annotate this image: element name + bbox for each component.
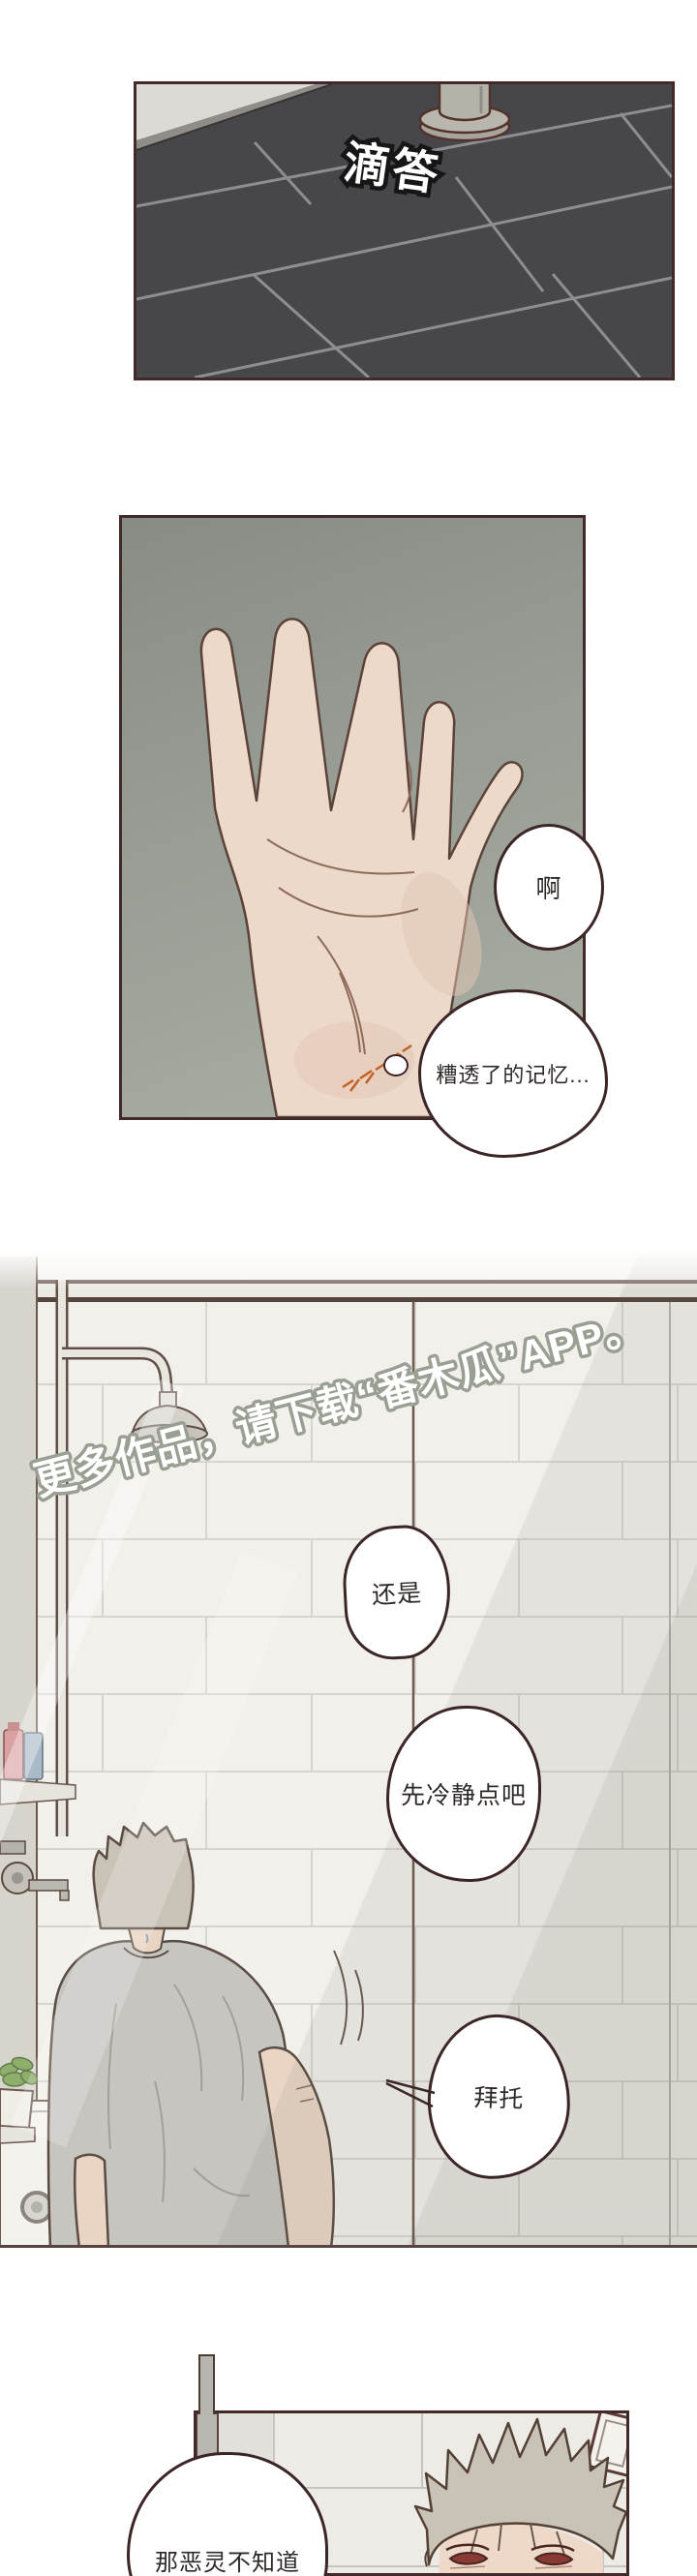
figure-left-forearm — [75, 2155, 108, 2248]
panel-floor-scene — [134, 81, 675, 380]
pink-bottle-cap — [8, 1722, 19, 1731]
floor-illustration — [136, 84, 672, 378]
blue-bottle — [24, 1733, 43, 1779]
shower-fixture — [62, 1280, 207, 1836]
speech-bubble-memory: 糟透了的记忆... — [418, 989, 608, 1158]
panel-bottom-line — [0, 2245, 697, 2248]
shower-room-illustration — [0, 1249, 697, 2248]
bubble-ah-text: 啊 — [535, 869, 561, 905]
pink-bottle — [4, 1730, 23, 1779]
plant-pot — [0, 2089, 33, 2128]
panel-shower-scene — [0, 1249, 697, 2248]
bubble-haishi-text: 还是 — [371, 1574, 423, 1612]
door-edge-top — [198, 2354, 215, 2414]
motion-lines — [334, 1951, 363, 2045]
speech-bubble-calm: 先冷静点吧 — [386, 1706, 541, 1882]
wall-molding — [35, 1280, 697, 1302]
speech-bubble-memory-tail — [383, 1054, 409, 1076]
bubble-memory-text: 糟透了的记忆... — [436, 1058, 590, 1089]
speech-bubble-ah: 啊 — [494, 824, 604, 951]
figure-hair — [94, 1823, 194, 1928]
bubble-evil-spirit-line1: 那恶灵不知道 — [130, 2548, 325, 2576]
figure-back-view — [48, 1823, 363, 2248]
comic-page: 滴答 滴答 — [0, 0, 697, 2576]
bubble-please-tail — [382, 2067, 440, 2115]
bubble-calm-text: 先冷静点吧 — [401, 1776, 527, 1811]
pot-ledge — [0, 2126, 35, 2143]
bubble-please-text: 拜托 — [473, 2078, 525, 2115]
